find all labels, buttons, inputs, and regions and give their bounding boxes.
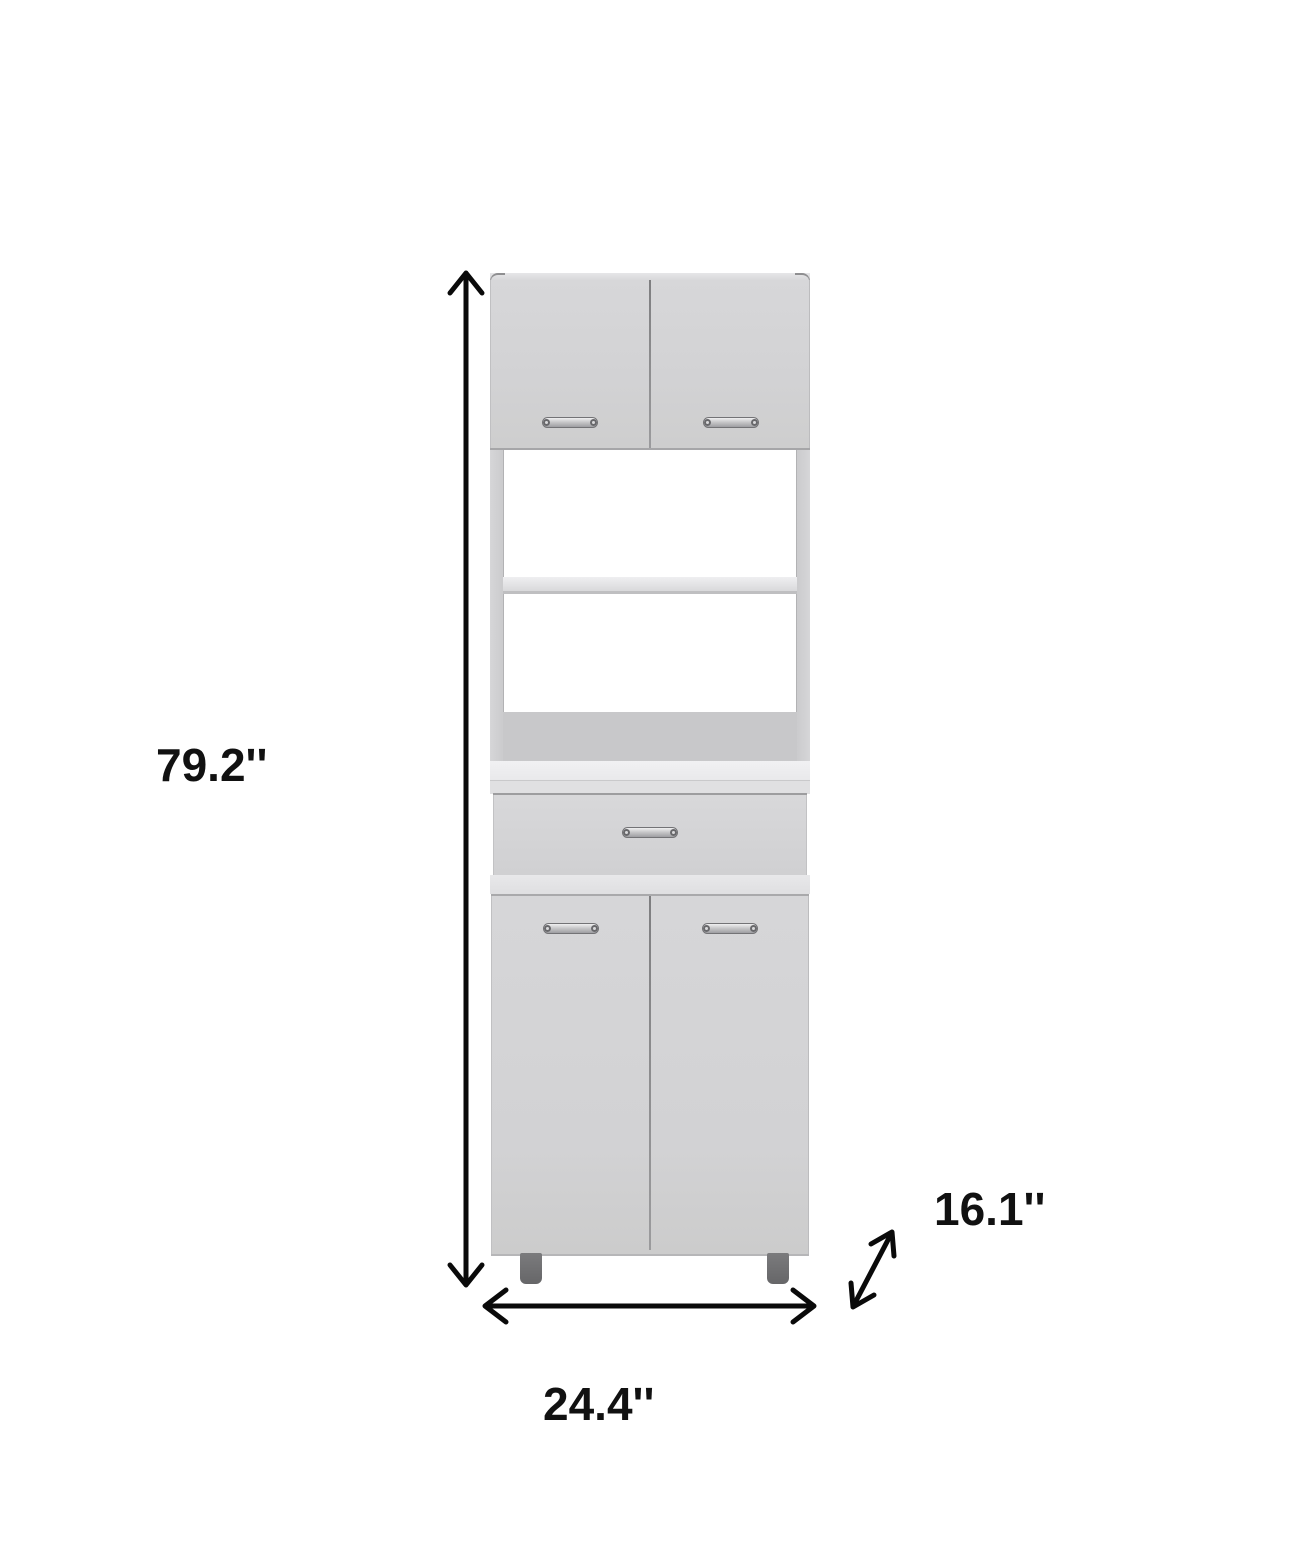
width-dimension-arrow-icon <box>485 1290 814 1322</box>
depth-dimension-arrow-icon <box>851 1232 894 1307</box>
product-dimension-diagram: 79.2'' 24.4'' 16.1'' <box>0 0 1300 1560</box>
width-dimension-label: 24.4'' <box>543 1381 654 1427</box>
depth-dimension-label: 16.1'' <box>934 1186 1045 1232</box>
height-dimension-arrow-icon <box>450 273 482 1285</box>
height-dimension-label: 79.2'' <box>156 742 267 788</box>
